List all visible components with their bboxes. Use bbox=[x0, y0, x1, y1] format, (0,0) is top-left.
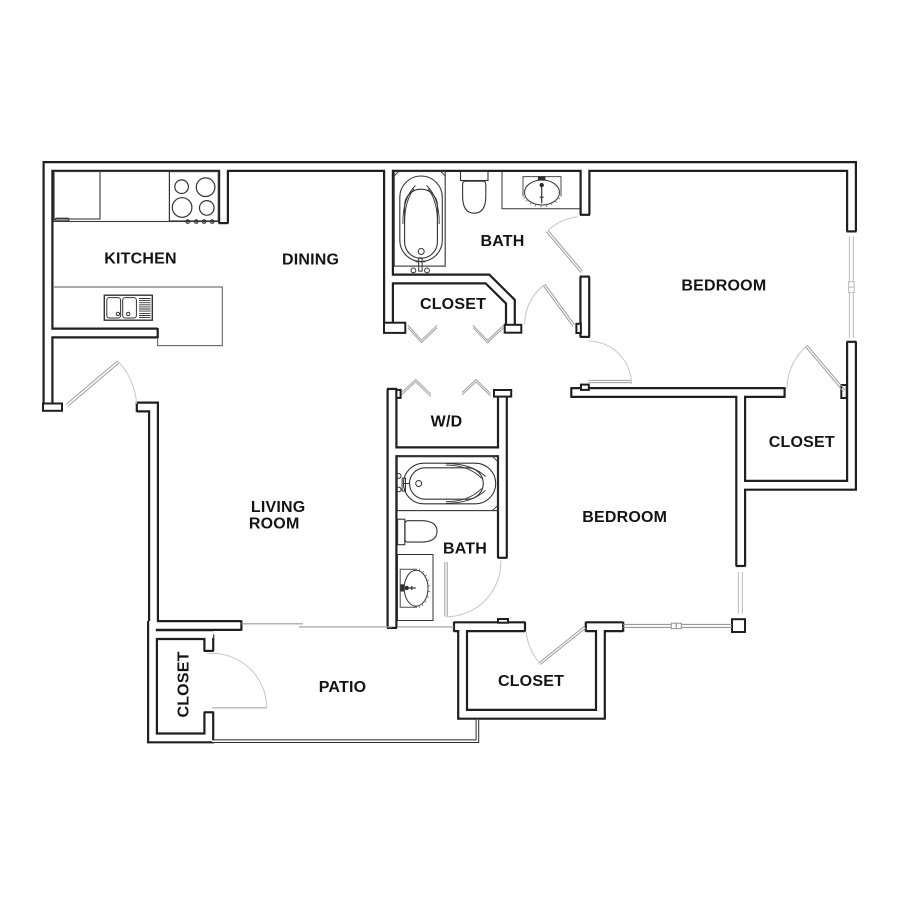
svg-text:ROOM: ROOM bbox=[249, 515, 300, 532]
svg-text:BATH: BATH bbox=[443, 541, 487, 558]
svg-text:BEDROOM: BEDROOM bbox=[582, 509, 667, 526]
svg-text:KITCHEN: KITCHEN bbox=[104, 250, 177, 267]
svg-text:BEDROOM: BEDROOM bbox=[681, 278, 766, 295]
svg-text:CLOSET: CLOSET bbox=[175, 651, 192, 717]
svg-text:DINING: DINING bbox=[282, 251, 339, 268]
svg-text:PATIO: PATIO bbox=[319, 679, 367, 696]
svg-text:W/D: W/D bbox=[431, 413, 463, 430]
svg-text:BATH: BATH bbox=[480, 233, 524, 250]
svg-text:LIVING: LIVING bbox=[251, 499, 306, 516]
svg-text:CLOSET: CLOSET bbox=[769, 434, 835, 451]
svg-text:CLOSET: CLOSET bbox=[498, 673, 564, 690]
svg-text:CLOSET: CLOSET bbox=[420, 296, 486, 313]
